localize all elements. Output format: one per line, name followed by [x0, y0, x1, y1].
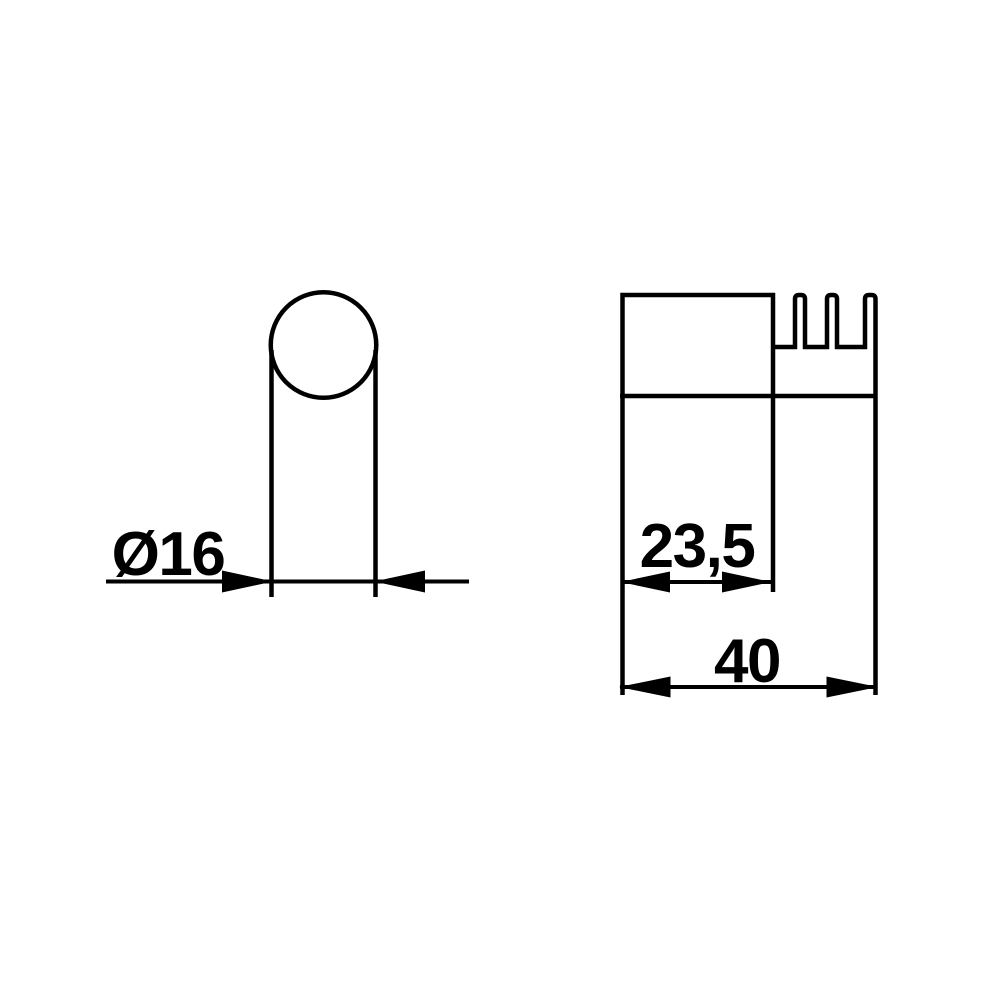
diameter-dimension-label: Ø16 — [112, 520, 225, 589]
technical-drawing-page: Ø16 23,5 40 — [0, 0, 1000, 1000]
total-depth-dimension-label: 40 — [714, 627, 780, 696]
partial-depth-dimension-label: 23,5 — [640, 512, 755, 581]
technical-drawing-canvas: Ø16 23,5 40 — [0, 0, 1000, 1000]
paper-background — [0, 0, 1000, 1000]
